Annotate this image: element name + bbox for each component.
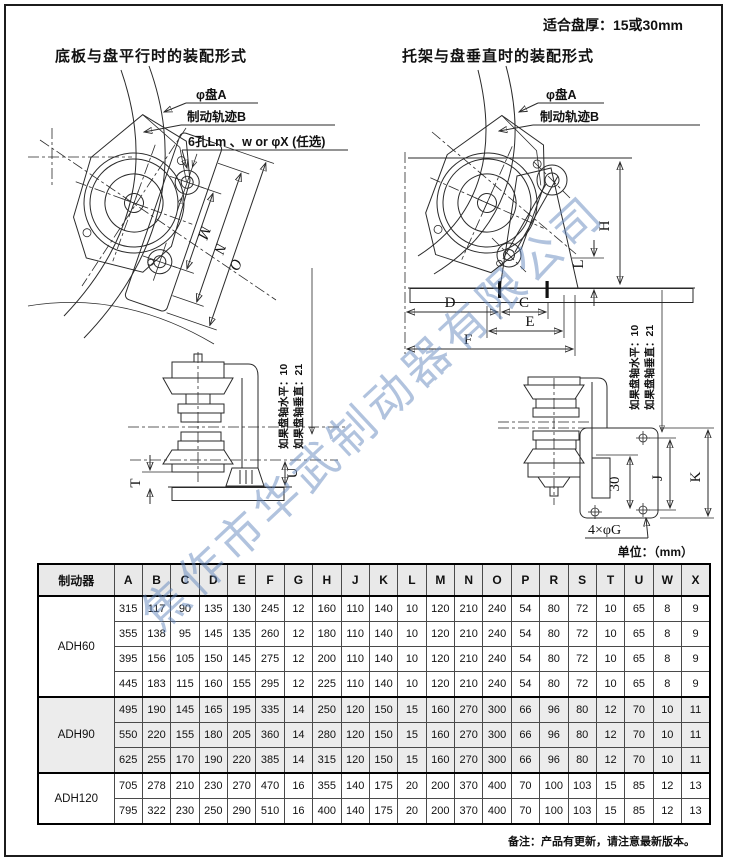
table-cell: 260 [256,622,284,647]
column-header: X [682,564,711,596]
table-cell: 322 [142,799,170,825]
table-cell: 145 [228,647,256,672]
axis-note-left: 如果盘轴水平：10 如果盘轴垂直：21 [277,364,307,449]
table-cell: 138 [142,622,170,647]
model-cell: ADH60 [38,596,114,697]
table-cell: 10 [398,622,426,647]
dim-label-L: L [571,259,587,268]
table-cell: 80 [540,622,568,647]
table-cell: 183 [142,672,170,698]
spec-sheet-page: 适合盘厚：15或30mm 底板与盘平行时的装配形式 托架与盘垂直时的装配形式 [0,0,730,865]
brake-pad [536,440,576,449]
table-row: ADH9049519014516519533514250120150151602… [38,697,710,723]
table-cell: 220 [228,748,256,774]
table-cell: 130 [228,596,256,622]
column-header: H [313,564,341,596]
table-cell: 13 [682,773,711,799]
table-cell: 135 [199,596,227,622]
table-cell: 11 [682,697,711,723]
axis-note-vertical: 如果盘轴垂直：21 [292,364,307,449]
table-cell: 54 [511,647,539,672]
footer-note: 备注：产品有更新，请注意最新版本。 [508,833,695,849]
table-cell: 250 [313,697,341,723]
table-cell: 270 [455,748,483,774]
table-cell: 190 [199,748,227,774]
table-cell: 14 [284,748,312,774]
table-cell: 8 [653,672,681,698]
table-cell: 180 [199,723,227,748]
table-cell: 105 [171,647,199,672]
table-cell: 16 [284,773,312,799]
table-cell: 135 [228,622,256,647]
table-cell: 120 [426,596,454,622]
table-cell: 80 [568,748,596,774]
ground-hatch [172,488,284,501]
engineering-drawings: M N O φ盘A 制动轨迹B 6孔Lm 、w or φX (任选) [0,0,730,563]
dim-label-D: D [445,295,456,311]
bolt-hole [636,431,650,445]
table-cell: 11 [682,748,711,774]
column-header: C [171,564,199,596]
brake-pad [181,432,221,441]
table-cell: 705 [114,773,142,799]
table-cell: 155 [228,672,256,698]
table-cell: 210 [455,596,483,622]
table-cell: 200 [313,647,341,672]
table-cell: 230 [171,799,199,825]
table-cell: 140 [369,672,397,698]
diagram-perpendicular-mount: H L D C E F φ盘A 制动轨迹B [403,66,700,356]
dim-label-C: C [519,295,529,311]
table-cell: 150 [369,723,397,748]
table-cell: 65 [625,672,653,698]
table-cell: 200 [426,799,454,825]
table-cell: 72 [568,672,596,698]
table-cell: 72 [568,596,596,622]
table-cell: 12 [653,799,681,825]
table-cell: 80 [540,647,568,672]
table-cell: 80 [568,723,596,748]
table-cell: 110 [341,647,369,672]
table-cell: 315 [114,596,142,622]
callout-track-b: 制动轨迹B [187,109,246,124]
table-cell: 625 [114,748,142,774]
mounting-plate: M N O [124,132,278,332]
table-cell: 54 [511,622,539,647]
table-row: 3551389514513526012180110140101202102405… [38,622,710,647]
side-view-floor-mount: T U [128,268,345,504]
table-cell: 54 [511,596,539,622]
table-cell: 85 [625,773,653,799]
table-cell: 315 [313,748,341,774]
table-cell: 10 [398,647,426,672]
column-header: R [540,564,568,596]
section-title-perpendicular: 托架与盘垂直时的装配形式 [402,45,594,66]
table-cell: 240 [483,672,511,698]
table-cell: 245 [256,596,284,622]
table-cell: 278 [142,773,170,799]
bolt-hole [636,503,650,517]
table-cell: 66 [511,748,539,774]
table-cell: 15 [596,799,624,825]
table-cell: 150 [369,748,397,774]
hole-spec-label: 4×φG [588,523,621,538]
table-cell: 115 [171,672,199,698]
table-cell: 150 [199,647,227,672]
table-cell: 550 [114,723,142,748]
table-cell: 100 [540,773,568,799]
table-cell: 120 [341,697,369,723]
dim-label-E: E [525,314,534,330]
table-cell: 9 [682,596,711,622]
table-cell: 175 [369,773,397,799]
table-cell: 300 [483,748,511,774]
table-cell: 250 [199,799,227,825]
spec-table-header-row: 制动器ABCDEFGHJKLMNOPRSTUWX [38,564,710,596]
table-cell: 12 [284,647,312,672]
table-cell: 145 [199,622,227,647]
table-cell: 240 [483,596,511,622]
table-cell: 12 [284,622,312,647]
table-cell: 195 [228,697,256,723]
table-cell: 120 [341,748,369,774]
brake-pad [181,413,221,422]
table-cell: 210 [171,773,199,799]
table-cell: 170 [171,748,199,774]
table-cell: 11 [682,723,711,748]
table-cell: 54 [511,672,539,698]
column-header: D [199,564,227,596]
table-cell: 10 [596,596,624,622]
table-cell: 795 [114,799,142,825]
dim-label-T: T [128,478,144,487]
table-cell: 110 [341,622,369,647]
table-cell: 10 [653,748,681,774]
table-cell: 12 [596,748,624,774]
table-cell: 445 [114,672,142,698]
table-cell: 400 [483,799,511,825]
table-cell: 210 [455,672,483,698]
table-row: 6252551701902203851431512015015160270300… [38,748,710,774]
table-cell: 140 [341,799,369,825]
table-cell: 270 [455,723,483,748]
table-cell: 65 [625,647,653,672]
table-cell: 335 [256,697,284,723]
table-cell: 190 [142,697,170,723]
table-cell: 160 [426,748,454,774]
table-cell: 370 [455,799,483,825]
table-cell: 10 [398,672,426,698]
table-cell: 140 [341,773,369,799]
table-cell: 270 [228,773,256,799]
column-header: B [142,564,170,596]
axis-note-vertical: 如果盘轴垂直：21 [643,325,658,410]
table-row: 3951561051501452751220011014010120210240… [38,647,710,672]
table-cell: 96 [540,697,568,723]
table-row: ADH1207052782102302704701635514017520200… [38,773,710,799]
table-cell: 120 [426,622,454,647]
table-cell: 150 [369,697,397,723]
bolt-hole [588,505,602,519]
table-cell: 20 [398,773,426,799]
table-cell: 12 [653,773,681,799]
column-header: L [398,564,426,596]
axis-note-horizontal: 如果盘轴水平：10 [277,364,292,449]
table-cell: 205 [228,723,256,748]
table-cell: 10 [653,697,681,723]
table-cell: 355 [313,773,341,799]
brake-pad [536,399,576,408]
table-cell: 12 [284,672,312,698]
table-cell: 117 [142,596,170,622]
column-header: W [653,564,681,596]
table-cell: 220 [142,723,170,748]
table-cell: 14 [284,723,312,748]
table-cell: 70 [625,748,653,774]
table-cell: 290 [228,799,256,825]
callout-holes: 6孔Lm 、w or φX (任选) [188,134,325,149]
table-cell: 160 [426,697,454,723]
table-cell: 103 [568,799,596,825]
table-cell: 72 [568,622,596,647]
table-cell: 300 [483,723,511,748]
table-cell: 110 [341,596,369,622]
table-cell: 230 [199,773,227,799]
table-cell: 156 [142,647,170,672]
table-cell: 72 [568,647,596,672]
table-cell: 85 [625,799,653,825]
table-cell: 300 [483,697,511,723]
table-cell: 96 [540,723,568,748]
table-cell: 9 [682,622,711,647]
table-cell: 165 [199,697,227,723]
table-cell: 65 [625,622,653,647]
table-cell: 8 [653,622,681,647]
table-cell: 100 [540,799,568,825]
table-cell: 355 [114,622,142,647]
column-header-model: 制动器 [38,564,114,596]
table-cell: 360 [256,723,284,748]
table-cell: 385 [256,748,284,774]
table-cell: 9 [682,647,711,672]
table-cell: 12 [596,723,624,748]
table-cell: 8 [653,596,681,622]
table-cell: 240 [483,622,511,647]
table-cell: 10 [653,723,681,748]
table-cell: 70 [625,697,653,723]
table-cell: 90 [171,596,199,622]
table-cell: 20 [398,799,426,825]
column-header: O [483,564,511,596]
table-cell: 65 [625,596,653,622]
column-header: T [596,564,624,596]
table-cell: 140 [369,596,397,622]
table-cell: 9 [682,672,711,698]
unit-note: 单位：（mm） [618,543,693,560]
table-cell: 80 [568,697,596,723]
table-cell: 16 [284,799,312,825]
axis-note-horizontal: 如果盘轴水平：10 [628,325,643,410]
column-header: E [228,564,256,596]
table-row: 5502201551802053601428012015015160270300… [38,723,710,748]
table-cell: 80 [540,596,568,622]
table-cell: 160 [313,596,341,622]
table-cell: 160 [426,723,454,748]
table-cell: 160 [199,672,227,698]
callout-disc-a: φ盘A [196,87,226,102]
table-cell: 155 [171,723,199,748]
table-cell: 15 [398,748,426,774]
column-header: N [455,564,483,596]
column-header: F [256,564,284,596]
table-cell: 120 [426,647,454,672]
table-row: 7953222302502905101640014017520200370400… [38,799,710,825]
table-cell: 15 [398,697,426,723]
table-cell: 210 [455,622,483,647]
table-cell: 10 [398,596,426,622]
table-cell: 175 [369,799,397,825]
table-row: ADH6031511790135130245121601101401012021… [38,596,710,622]
table-cell: 10 [596,622,624,647]
table-cell: 95 [171,622,199,647]
table-cell: 255 [142,748,170,774]
model-cell: ADH90 [38,697,114,773]
mount-foot [226,468,264,486]
column-header: S [568,564,596,596]
dim-label-K: K [688,471,704,482]
disc-thickness-note: 适合盘厚：15或30mm [543,15,683,35]
table-cell: 96 [540,748,568,774]
table-cell: 8 [653,647,681,672]
table-cell: 270 [455,697,483,723]
section-title-parallel: 底板与盘平行时的装配形式 [55,45,247,66]
callout-track-b: 制动轨迹B [540,109,599,124]
axis-note-right: 如果盘轴水平：10 如果盘轴垂直：21 [628,325,658,410]
table-cell: 510 [256,799,284,825]
column-header: A [114,564,142,596]
table-cell: 12 [596,697,624,723]
dim-label-F: F [464,332,472,348]
support-bracket [500,168,578,288]
table-cell: 370 [455,773,483,799]
table-cell: 66 [511,697,539,723]
table-cell: 395 [114,647,142,672]
dim-label-U: U [285,467,301,478]
table-cell: 295 [256,672,284,698]
table-cell: 140 [369,647,397,672]
model-cell: ADH120 [38,773,114,824]
table-cell: 240 [483,647,511,672]
column-header: U [625,564,653,596]
table-cell: 12 [284,596,312,622]
dim-label-H: H [597,220,613,231]
table-cell: 470 [256,773,284,799]
table-cell: 280 [313,723,341,748]
table-cell: 15 [596,773,624,799]
dim-label-30: 30 [607,477,623,492]
dim-label-J: J [650,475,666,481]
table-cell: 70 [511,773,539,799]
table-cell: 13 [682,799,711,825]
table-cell: 120 [426,672,454,698]
table-cell: 145 [171,697,199,723]
table-cell: 400 [313,799,341,825]
spec-table-body: ADH6031511790135130245121601101401012021… [38,596,710,824]
table-cell: 10 [596,672,624,698]
table-cell: 110 [341,672,369,698]
table-cell: 495 [114,697,142,723]
column-header: P [511,564,539,596]
table-cell: 210 [455,647,483,672]
table-cell: 70 [511,799,539,825]
table-cell: 200 [426,773,454,799]
table-cell: 66 [511,723,539,748]
table-cell: 10 [596,647,624,672]
table-cell: 15 [398,723,426,748]
column-header: M [426,564,454,596]
table-cell: 70 [625,723,653,748]
diagram-parallel-mount: M N O φ盘A 制动轨迹B 6孔Lm 、w or φX (任选) [28,66,348,344]
table-cell: 275 [256,647,284,672]
table-cell: 14 [284,697,312,723]
table-cell: 140 [369,622,397,647]
spec-table: 制动器ABCDEFGHJKLMNOPRSTUWX ADH603151179013… [37,563,711,825]
column-header: K [369,564,397,596]
column-header: G [284,564,312,596]
column-header: J [341,564,369,596]
callout-disc-a: φ盘A [546,87,576,102]
table-row: 4451831151601552951222511014010120210240… [38,672,710,698]
table-cell: 400 [483,773,511,799]
brake-track-arc [64,70,136,316]
table-cell: 225 [313,672,341,698]
table-cell: 80 [540,672,568,698]
table-cell: 180 [313,622,341,647]
table-cell: 120 [341,723,369,748]
table-cell: 103 [568,773,596,799]
disc-edge-arc [434,66,515,274]
